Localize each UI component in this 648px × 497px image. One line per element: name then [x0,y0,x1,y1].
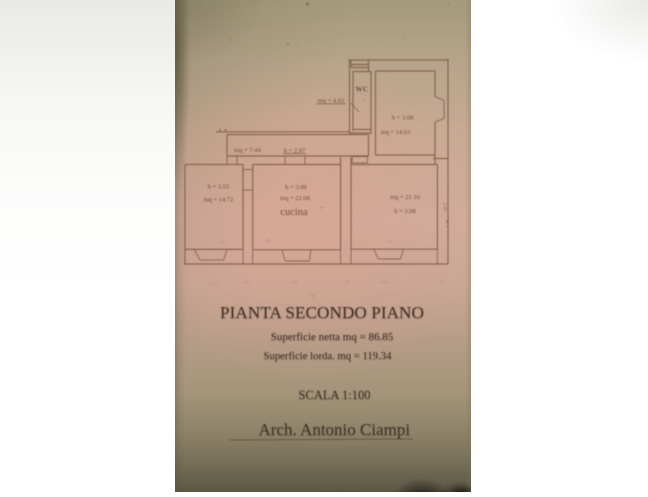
svg-text:h = 3.55: h = 3.55 [208,184,230,191]
svg-text:4.60: 4.60 [290,280,299,285]
svg-text:90: 90 [345,280,350,285]
svg-text:40.: 40. [220,239,226,244]
svg-text:mq = 7.44: mq = 7.44 [234,147,261,154]
svg-text:3.10: 3.10 [209,281,218,286]
svg-text:40.: 40. [387,239,393,244]
svg-text:WC: WC [356,86,369,94]
svg-text:h = 3.08: h = 3.08 [394,208,416,215]
svg-text:mq = 22.08: mq = 22.08 [280,195,310,202]
svg-text:h = 3.08: h = 3.08 [392,115,414,122]
svg-text:mq = 14.72: mq = 14.72 [204,197,234,204]
svg-text:cucina: cucina [280,207,308,218]
svg-text:h = 3.08: h = 3.08 [285,184,307,191]
svg-text:4.60: 4.60 [380,280,389,285]
svg-text:90: 90 [245,280,250,285]
svg-text:40.: 40. [265,238,271,243]
svg-text:mq = 21.16: mq = 21.16 [390,194,421,201]
svg-text:mq = 14.63: mq = 14.63 [381,129,411,136]
svg-text:147: 147 [310,293,318,298]
svg-text:2.60: 2.60 [442,203,447,212]
svg-text:60: 60 [439,279,444,284]
